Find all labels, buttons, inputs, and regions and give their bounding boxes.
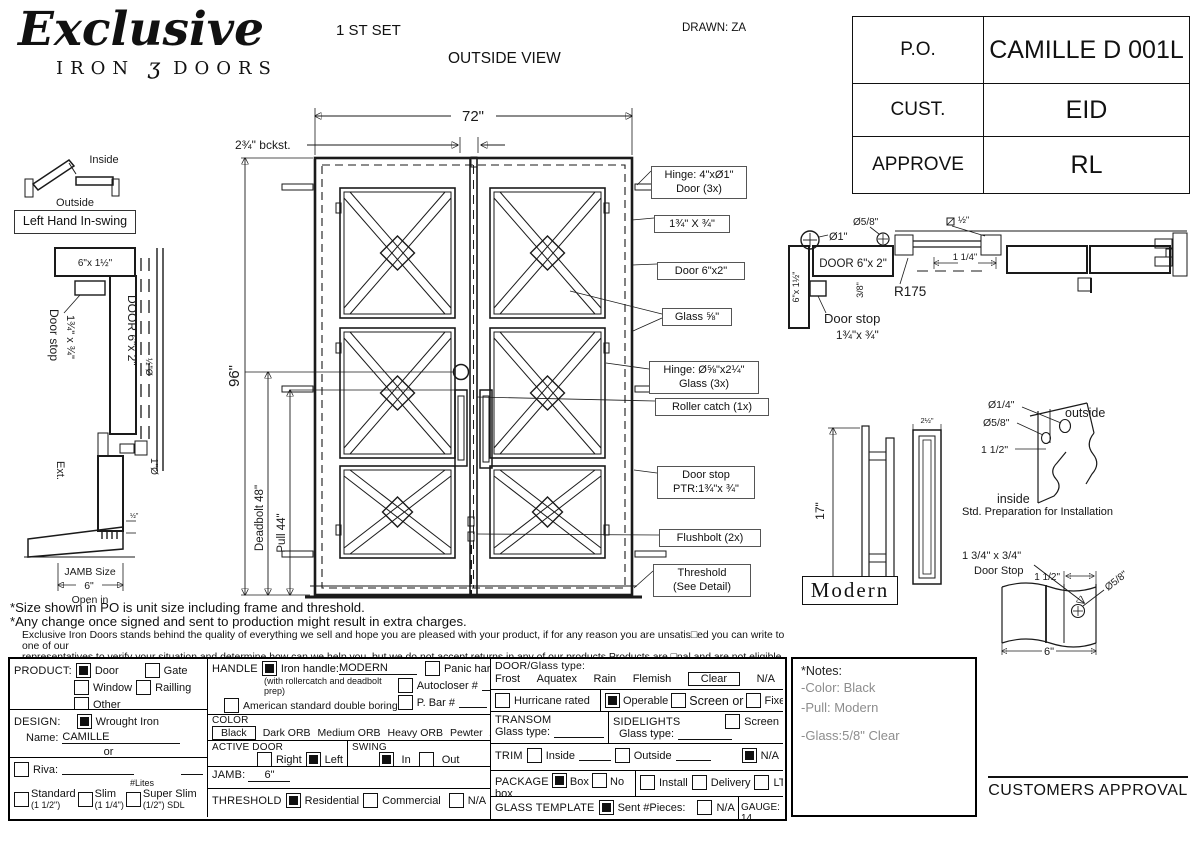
checkbox-gate[interactable]: [145, 663, 160, 678]
signature-line[interactable]: [988, 776, 1188, 778]
checkbox-box[interactable]: [552, 773, 567, 788]
design-cell: DESIGN: Wrought Iron Name: CAMILLE or: [10, 709, 207, 757]
doorstop-detail-drawing: 1 3/4" x 3/4" Door Stop 1 1/2" Ø5/8" 6": [956, 543, 1196, 665]
door-glass-cell: DOOR/Glass type: Frost Aquatex Rain Flem…: [490, 659, 783, 689]
jamb-stop-section: [98, 433, 147, 456]
handle-side-view: [862, 426, 894, 588]
design-name-value[interactable]: CAMILLE: [62, 731, 180, 744]
jamb-half-tick: ½": [130, 512, 139, 520]
door-hardware: [454, 157, 493, 595]
trim-cell: TRIM Inside Outside N/A: [490, 743, 783, 770]
checkbox-no-box[interactable]: [592, 773, 607, 788]
checkbox-out[interactable]: [419, 752, 434, 766]
package-label: PACKAGE: [495, 776, 549, 788]
design-label: DESIGN:: [14, 716, 61, 728]
stop-dim-top: 1 1/2": [1034, 572, 1060, 583]
swing-inside-label: Inside: [89, 154, 118, 166]
table-row: APPROVE RL: [853, 137, 1190, 194]
checkbox-delivery[interactable]: [692, 775, 707, 790]
option-label: Standard: [31, 788, 76, 800]
logo-doors: DOORS: [173, 58, 278, 79]
checkbox-trim-na[interactable]: [742, 748, 757, 763]
corner-dia-58: Ø5/8": [983, 417, 1010, 429]
cust-value: EID: [984, 84, 1190, 137]
company-logo: Exclusive IRON ʒ DOORS: [18, 6, 278, 80]
sidelights-glass-label: Glass type:: [619, 728, 674, 740]
callout-line: Door (3x): [655, 182, 743, 196]
option-label: In: [402, 754, 411, 766]
color-selected[interactable]: Black: [212, 726, 256, 740]
swing-cell: SWING In Out: [347, 740, 490, 766]
option-label: Hurricane rated: [514, 695, 590, 707]
option-label: N/A: [716, 802, 734, 814]
stop-title-name: Door Stop: [974, 565, 1024, 577]
trim-label: TRIM: [495, 750, 523, 762]
option-label: Right: [276, 754, 302, 766]
disclaimer-line: *Size shown in PO is unit size including…: [10, 601, 790, 615]
callout-line: Roller catch (1x): [659, 400, 765, 414]
transom-glass-label: Glass type:: [495, 726, 550, 738]
callout-line: Threshold: [657, 566, 747, 580]
jamb-doorstop-dim: 1¾" x ¾": [64, 315, 76, 359]
checkbox-door[interactable]: [76, 663, 91, 678]
checkbox-trim-outside[interactable]: [615, 748, 630, 763]
threshold-label: THRESHOLD: [212, 795, 282, 807]
riva-cell: Riva: #Lites Standard (1 1/2") Slim (1 1…: [10, 757, 207, 817]
callout-line: Door 6"x2": [661, 264, 741, 278]
trim-outside-blank[interactable]: [676, 750, 711, 761]
swing-type-label: Left Hand In-swing: [14, 210, 136, 234]
notes-line: -Color: Black: [801, 678, 967, 698]
riva-blank[interactable]: [62, 764, 134, 775]
notes-line: -Glass:5/8" Clear: [801, 726, 967, 746]
callout-hinge-door: Hinge: 4"xØ1" Door (3x): [651, 166, 747, 199]
checkbox-wrought-iron[interactable]: [77, 714, 92, 729]
height-dim-label: 96": [226, 365, 243, 387]
stop-title-dim: 1 3/4" x 3/4": [962, 550, 1021, 562]
option-label: P. Bar #: [417, 697, 455, 709]
dimension-lines: [241, 108, 632, 595]
logo-subtitle: IRON ʒ DOORS: [56, 55, 278, 80]
callout-line: PTR:1¾"x ¾": [661, 482, 751, 496]
option-label: Window: [93, 682, 132, 694]
checkbox-threshold-na[interactable]: [449, 793, 464, 808]
head-doorstop-label: Door stop: [824, 311, 880, 326]
handle-label: HANDLE: [212, 663, 258, 675]
handle-width-dim: 2½": [920, 416, 933, 425]
approve-value: RL: [984, 137, 1190, 194]
sidelights-cell: SIDELIGHTS Screen Glass type:: [608, 711, 783, 743]
checkbox-operable[interactable]: [605, 693, 620, 708]
leaf-sections: [1007, 233, 1187, 293]
swing-outside-label: Outside: [56, 197, 94, 209]
transom-glass-blank[interactable]: [554, 727, 604, 738]
notes-title: *Notes:: [801, 664, 967, 678]
disclaimer-line: *Any change once signed and sent to prod…: [10, 615, 790, 629]
glass-section: [895, 218, 1187, 284]
logo-iron: IRON: [56, 58, 135, 79]
glass-selected[interactable]: Clear: [688, 672, 740, 686]
or-label: or: [104, 746, 114, 757]
riva-blank2[interactable]: [181, 764, 203, 775]
head-dim-38: 3/8": [855, 282, 865, 298]
table-row: CUST. EID: [853, 84, 1190, 137]
po-table: P.O. CAMILLE D 001L CUST. EID APPROVE RL: [852, 16, 1190, 194]
callout-roller-catch: Roller catch (1x): [655, 398, 769, 416]
glass-template-label: GLASS TEMPLATE: [495, 802, 595, 814]
head-dia-58: Ø5/8": [853, 217, 879, 228]
option-label: Autocloser #: [417, 680, 478, 692]
checkbox-slim[interactable]: [78, 792, 93, 807]
checkbox-iron-handle[interactable]: [262, 661, 277, 676]
swing-diagram: Inside Outside: [12, 146, 144, 212]
checkbox-sidelight-screen[interactable]: [725, 714, 740, 729]
callout-line: Glass (3x): [653, 377, 755, 391]
package-delivery-cell: Install Delivery LTL: [635, 770, 783, 796]
product-other-blank[interactable]: [125, 699, 187, 709]
checkbox-riva[interactable]: [14, 762, 29, 777]
checkbox-panic[interactable]: [425, 661, 440, 676]
set-label: 1 ST SET: [336, 22, 401, 39]
head-dia-one: Ø1": [829, 231, 848, 243]
option-label: Delivery: [711, 777, 751, 789]
option-label: N/A: [468, 795, 486, 807]
notes-line: -Pull: Modern: [801, 698, 967, 718]
checkbox-standard[interactable]: [14, 792, 29, 807]
gauge-cell: GAUGE: 14: [738, 796, 783, 819]
jamb-doorstop-label: Door stop: [47, 309, 61, 361]
callout-line: Flushbolt (2x): [663, 531, 757, 545]
jamb-value[interactable]: 6": [248, 769, 290, 782]
option-label: N/A: [761, 750, 779, 762]
color-label: COLOR: [212, 715, 486, 726]
checkbox-super-slim[interactable]: [126, 792, 141, 807]
deadbolt-dim-label: Deadbolt 48": [254, 485, 266, 551]
jamb-width-label: 6": [84, 580, 94, 592]
autocloser-blank[interactable]: [482, 680, 490, 691]
checkbox-screen-or[interactable]: [671, 693, 686, 708]
head-doorstop-dim: 1¾"x ¾": [836, 330, 879, 342]
callout-stile-dim: 1¾" X ¾": [654, 215, 730, 233]
head-sq-half: ½": [958, 215, 969, 226]
checkbox-trim-inside[interactable]: [527, 748, 542, 763]
package-cell: PACKAGE Box No box: [490, 770, 635, 796]
checkbox-autocloser[interactable]: [398, 678, 413, 693]
jamb-section-drawing: 6"x 1½" Door stop 1¾" x ¾" DOOR 6"x 2" ½…: [10, 243, 225, 611]
head-door-label: DOOR 6"x 2": [819, 258, 887, 270]
color-option[interactable]: Heavy ORB: [388, 727, 443, 739]
handle-sub: (with rollercatch and deadbolt prep): [264, 676, 398, 696]
product-label: PRODUCT:: [14, 665, 72, 677]
sidelights-glass-blank[interactable]: [678, 729, 732, 740]
callout-line: Hinge: Ø⅝"x2¼": [653, 363, 755, 377]
option-label: Box: [570, 776, 589, 788]
head-jamb-dim: 6"x 1½": [791, 272, 801, 303]
head-section-drawing: 6"x 1½" Ø1" Ø5/8" DOOR 6"x 2" 3/8" Door …: [782, 213, 1200, 371]
callout-threshold: Threshold (See Detail): [653, 564, 751, 597]
jamb-cell: JAMB: 6": [207, 766, 490, 788]
option-label: Sent #Pieces:: [618, 802, 686, 814]
checkbox-product-other[interactable]: [74, 697, 89, 709]
jamb-head: 6"x 1½": [55, 248, 135, 313]
callout-line: (See Detail): [657, 580, 747, 594]
option-label: Out: [442, 754, 460, 766]
stop-dia: Ø5/8": [1103, 569, 1130, 593]
approve-label: APPROVE: [853, 137, 984, 194]
width-dim-label: 72": [462, 108, 484, 125]
jamb-ext-label: Ext.: [54, 461, 66, 480]
checkbox-american-boring[interactable]: [224, 698, 239, 713]
transom-label: TRANSOM: [495, 714, 604, 726]
checkbox-window[interactable]: [74, 680, 89, 695]
option-label: Left: [325, 754, 343, 766]
callout-glass: Glass ⅝": [662, 308, 732, 326]
glass-template-cell: GLASS TEMPLATE Sent #Pieces: N/A: [490, 796, 738, 819]
active-door-label: ACTIVE DOOR: [212, 742, 283, 753]
checkbox-left[interactable]: [306, 752, 321, 766]
pull-dim-label: Pull 44": [276, 513, 288, 552]
checkbox-ltl[interactable]: [754, 775, 769, 790]
jamb-door-label: DOOR 6"x 2": [125, 295, 139, 366]
handle-height-dim: 17": [813, 502, 827, 520]
glass-option[interactable]: Flemish: [633, 673, 672, 685]
active-door-cell: ACTIVE DOOR Right Left: [207, 740, 347, 766]
installation-caption: Std. Preparation for Installation: [962, 506, 1152, 518]
backset-dim-label: 2¾" bckst.: [235, 138, 291, 152]
callout-line: Door stop: [661, 468, 751, 482]
disclaimer-line: Exclusive Iron Doors stands behind the q…: [22, 630, 790, 653]
callout-line: Hinge: 4"xØ1": [655, 168, 743, 182]
stop-dim-bottom: 6": [1044, 646, 1054, 658]
option-label: Railling: [155, 682, 191, 694]
callout-line: Glass ⅝": [666, 310, 728, 324]
checkbox-fixed[interactable]: [746, 693, 761, 708]
handle-front-view: [913, 424, 941, 584]
callout-line: 1¾" X ¾": [658, 217, 726, 231]
sidelights-label: SIDELIGHTS: [613, 716, 680, 728]
option-label: American standard double boring: [243, 700, 398, 712]
option-label: Panic hardware: [444, 663, 490, 675]
trim-inside-blank[interactable]: [579, 750, 611, 761]
option-label: Outside: [634, 750, 672, 762]
option-label: Screen or: [689, 694, 743, 708]
head-radius: R175: [894, 284, 926, 299]
option-label: Gate: [164, 665, 188, 677]
checkbox-hurricane[interactable]: [495, 693, 510, 708]
hurricane-cell: Hurricane rated: [490, 689, 600, 711]
handle-style-label: Modern: [802, 576, 898, 605]
option-label: Other: [93, 699, 121, 710]
glass-option[interactable]: Aquatex: [537, 673, 577, 685]
corner-offset: 1 1/2": [981, 444, 1008, 456]
option-label: Door: [95, 665, 119, 677]
option-label: Super Slim: [143, 788, 197, 800]
option-label: Wrought Iron: [96, 716, 159, 728]
callout-hinge-glass: Hinge: Ø⅝"x2¼" Glass (3x): [649, 361, 759, 394]
order-form: PRODUCT: Door Gate Window Railling Other…: [8, 657, 787, 821]
callout-door-size: Door 6"x2": [657, 262, 745, 280]
glass-option[interactable]: Frost: [495, 673, 520, 685]
notes-box: *Notes: -Color: Black -Pull: Modern -Gla…: [791, 657, 977, 817]
option-sub: (1/2") SDL: [143, 800, 197, 810]
corner-outside-label: outside: [1065, 406, 1105, 420]
checkbox-sent-pieces[interactable]: [599, 800, 614, 815]
checkbox-railing[interactable]: [136, 680, 151, 695]
option-label: Residential: [305, 795, 359, 807]
installation-detail-drawing: Ø1/4" Ø5/8" 1 1/2" outside inside: [975, 391, 1140, 509]
customers-approval-label: CUSTOMERS APPROVAL: [975, 782, 1200, 800]
head-dim-114: 1 1/4": [953, 252, 978, 263]
checkbox-in[interactable]: [379, 752, 394, 766]
checkbox-residential[interactable]: [286, 793, 301, 808]
glass-option[interactable]: Rain: [594, 673, 617, 685]
view-label: OUTSIDE VIEW: [448, 50, 561, 68]
logo-scroll-glyph: ʒ: [148, 55, 160, 80]
color-option[interactable]: Pewter: [450, 727, 483, 739]
color-option[interactable]: Medium ORB: [318, 727, 381, 739]
option-label: Operable: [623, 695, 668, 707]
checkbox-pbar[interactable]: [398, 695, 413, 710]
option-label: Fixed: [764, 695, 783, 707]
checkbox-template-na[interactable]: [697, 800, 712, 815]
pbar-blank[interactable]: [459, 697, 487, 708]
color-option[interactable]: Dark ORB: [263, 727, 311, 739]
riva-label: Riva:: [33, 764, 58, 776]
corner-dia-14: Ø1/4": [988, 399, 1015, 411]
jamb-lower: [98, 456, 136, 539]
po-value: CAMILLE D 001L: [984, 17, 1190, 84]
cust-label: CUST.: [853, 84, 984, 137]
callout-flushbolt: Flushbolt (2x): [659, 529, 761, 547]
checkbox-commercial[interactable]: [363, 793, 378, 808]
handle-cell: HANDLE Iron handle:MODERN Panic hardware…: [207, 659, 490, 714]
checkbox-install[interactable]: [640, 775, 655, 790]
logo-script-text: Exclusive: [18, 6, 278, 53]
product-cell: PRODUCT: Door Gate Window Railling Other: [10, 659, 207, 709]
corner-inside-label: inside: [997, 492, 1030, 506]
jamb-size-label: JAMB Size: [64, 566, 116, 578]
option-label: Iron handle:: [281, 663, 339, 675]
option-sub: (1 1/2"): [31, 800, 76, 810]
transom-cell: TRANSOM Glass type:: [490, 711, 608, 743]
door-glass-label: DOOR/Glass type:: [495, 660, 779, 672]
jamb-half-dia: ½"Ø: [144, 358, 154, 376]
option-label: Install: [659, 777, 688, 789]
glass-option[interactable]: N/A: [757, 673, 775, 685]
color-cell: COLOR Black Dark ORB Medium ORB Heavy OR…: [207, 714, 490, 740]
callout-door-stop: Door stop PTR:1¾"x ¾": [657, 466, 755, 499]
operable-cell: Operable Screen or Fixed: [600, 689, 783, 711]
lites-label: #Lites: [130, 778, 203, 788]
option-label: Screen: [744, 716, 779, 728]
jamb-label: JAMB:: [212, 769, 245, 781]
jamb-one-dia: 1"Ø: [148, 458, 159, 475]
threshold-section: [24, 527, 135, 591]
door-frame: [305, 158, 642, 597]
table-row: P.O. CAMILLE D 001L: [853, 17, 1190, 84]
door-panels: [340, 188, 605, 558]
handle-model-value[interactable]: MODERN: [339, 662, 417, 675]
po-label: P.O.: [853, 17, 984, 84]
drawn-label: DRAWN: ZA: [682, 22, 746, 34]
checkbox-right[interactable]: [257, 752, 272, 766]
option-label: Inside: [546, 750, 575, 762]
option-label: Commercial: [382, 795, 441, 807]
option-sub: (1 1/4"): [95, 800, 124, 810]
design-name-label: Name:: [26, 732, 58, 744]
jamb-head-dim: 6"x 1½": [78, 258, 113, 269]
option-label: LTL: [773, 777, 783, 789]
threshold-cell: THRESHOLD Residential Commercial N/A: [207, 788, 490, 817]
handle-dim: [828, 428, 860, 586]
option-label: Slim: [95, 788, 124, 800]
